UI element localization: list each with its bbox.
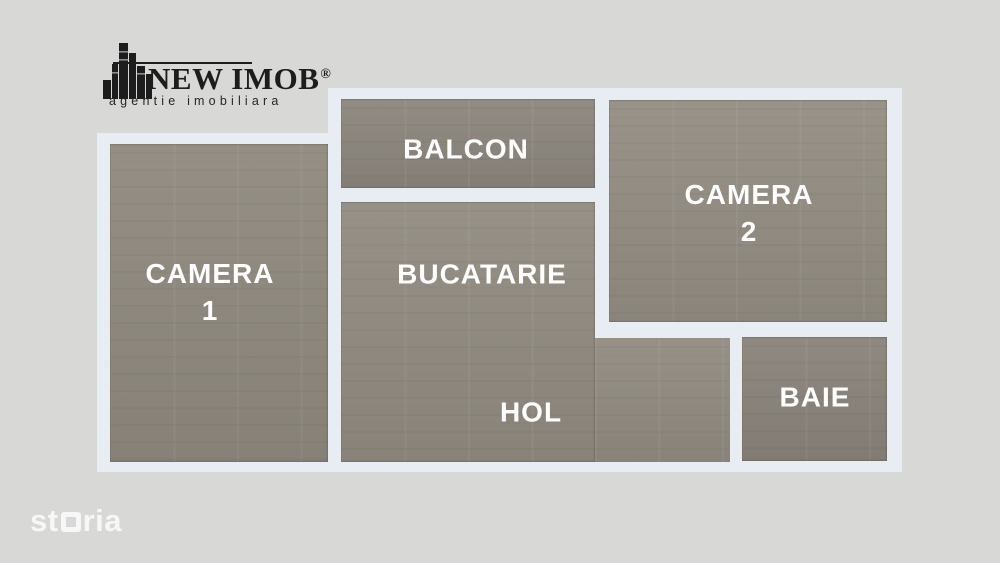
room-label-line: CAMERA [146, 255, 275, 292]
room-label-hol: HOL [500, 394, 562, 431]
room-label-line: BAIE [780, 379, 851, 416]
storia-watermark-suffix: ria [83, 503, 122, 538]
room-label-line: BALCON [403, 131, 529, 168]
logo-brand-text: NEW IMOB® [148, 63, 330, 94]
newimob-logo: NEW IMOB® agentie imobiliara [95, 38, 340, 112]
room-label-line: BUCATARIE [397, 256, 567, 293]
room-hol [595, 338, 730, 462]
room-label-bucatarie: BUCATARIE [397, 256, 567, 293]
room-label-line: 2 [685, 213, 814, 250]
room-label-balcon: BALCON [403, 131, 529, 168]
storia-watermark: stria [30, 505, 122, 537]
room-label-line: 1 [146, 292, 275, 329]
logo-brand-name: NEW IMOB [148, 61, 319, 96]
room-label-line: CAMERA [685, 176, 814, 213]
storia-square-o-icon [61, 512, 81, 532]
room-label-baie: BAIE [780, 379, 851, 416]
room-label-line: HOL [500, 394, 562, 431]
room-label-camera-2: CAMERA 2 [685, 176, 814, 250]
buildings-skyline-icon [103, 41, 153, 99]
logo-tagline: agentie imobiliara [109, 94, 283, 108]
storia-watermark-prefix: st [30, 503, 59, 538]
floorplan-canvas: NEW IMOB® agentie imobiliara CAMERA 1 BA… [0, 0, 1000, 563]
logo-registered-mark: ® [320, 67, 331, 82]
room-label-camera-1: CAMERA 1 [146, 255, 275, 329]
